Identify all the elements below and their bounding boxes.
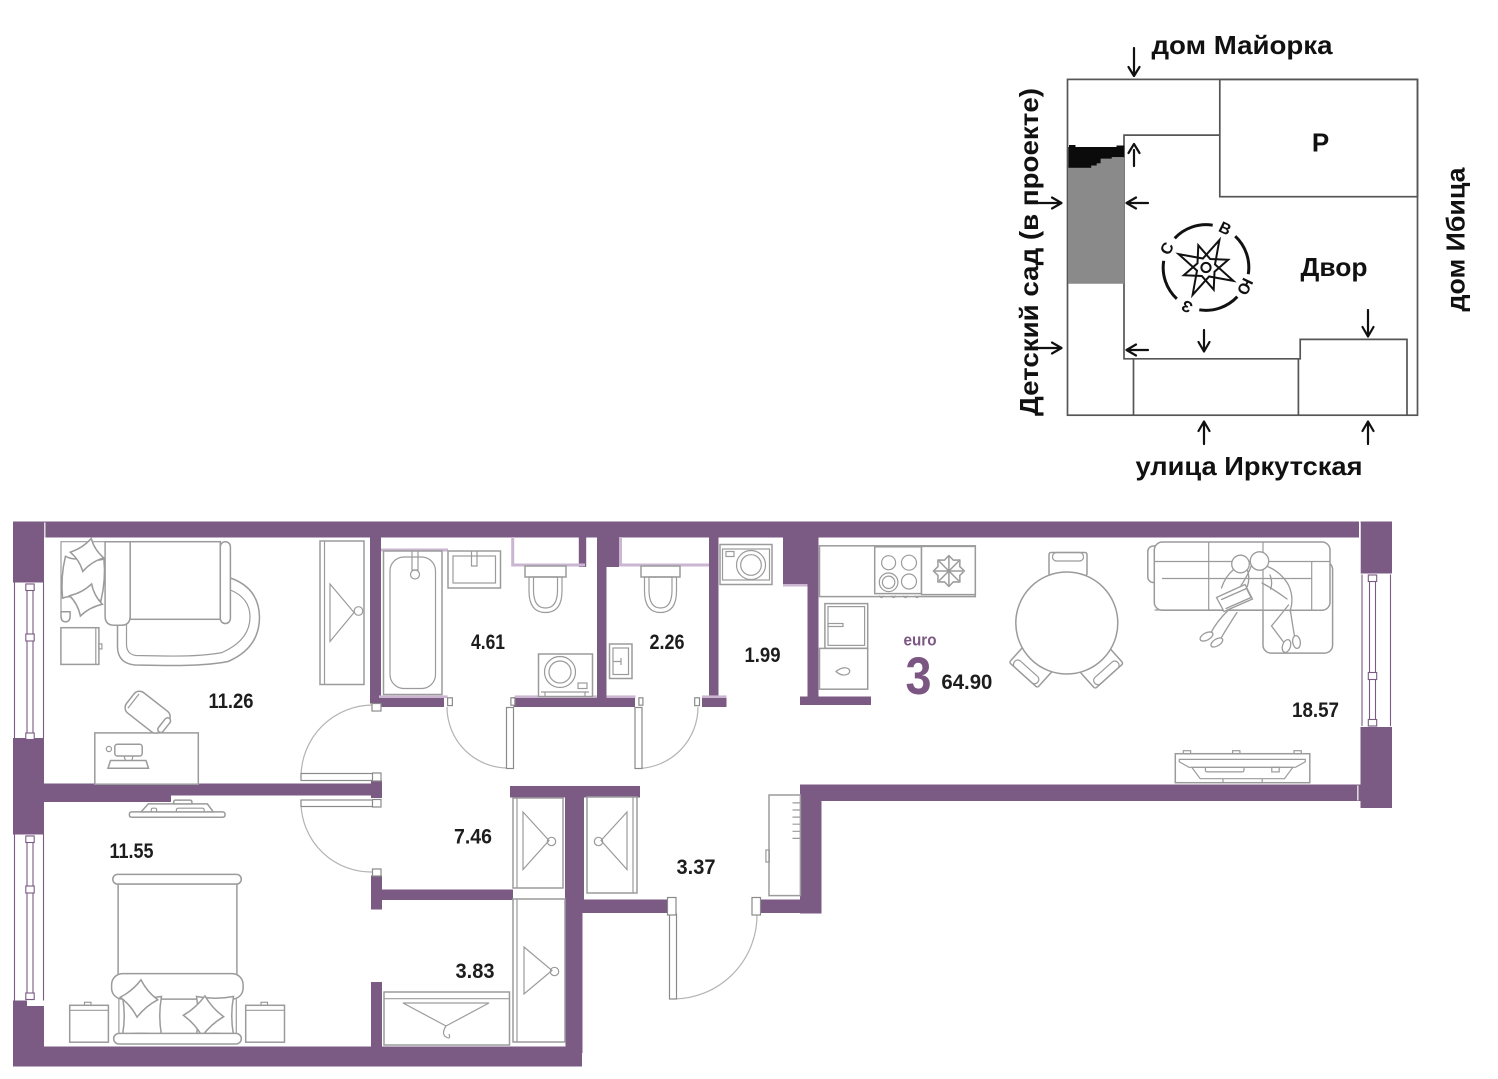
- svg-text:7.46: 7.46: [454, 825, 492, 849]
- svg-text:3.83: 3.83: [456, 959, 495, 983]
- svg-text:2.26: 2.26: [650, 630, 685, 654]
- svg-text:Детский сад (в проекте): Детский сад (в проекте): [1014, 88, 1044, 416]
- svg-text:4.61: 4.61: [471, 630, 505, 654]
- svg-text:64.90: 64.90: [941, 670, 992, 694]
- svg-text:дом Майорка: дом Майорка: [1152, 30, 1334, 60]
- svg-text:улица Иркутская: улица Иркутская: [1136, 451, 1363, 481]
- svg-text:дом Ибица: дом Ибица: [1441, 167, 1471, 312]
- svg-text:11.55: 11.55: [110, 839, 154, 863]
- svg-text:P: P: [1312, 128, 1329, 158]
- svg-text:3: 3: [906, 647, 932, 706]
- svg-text:3.37: 3.37: [677, 855, 716, 879]
- svg-text:1.99: 1.99: [745, 643, 781, 667]
- svg-text:11.26: 11.26: [209, 689, 254, 713]
- svg-text:Двор: Двор: [1301, 252, 1368, 282]
- svg-text:18.57: 18.57: [1292, 698, 1339, 722]
